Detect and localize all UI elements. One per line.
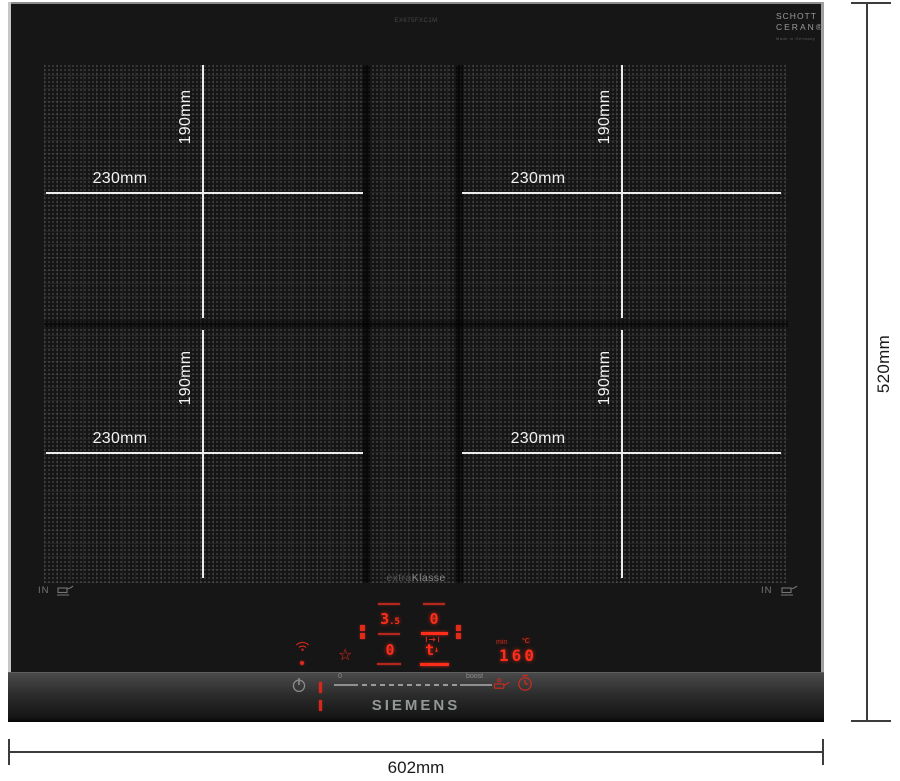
zone-width-label-top-left: 230mm [93,170,148,188]
model-number: EX675FXC1M [8,18,824,24]
wifi-icon [295,640,310,652]
dimension-tick-bottom [851,720,891,722]
series-label: extraKlasse [8,572,824,584]
spec-drawing: EX675FXC1M SCHOTT CERAN® Made in Germany… [0,0,900,781]
slider-boost-tick [460,684,492,686]
temperature-display[interactable]: 160 [492,646,544,665]
pause-indicator-right-icon [456,625,461,639]
right-display-mid-dash [421,632,448,635]
dimension-line-width [8,751,824,753]
series-label-klasse: Klasse [412,572,446,584]
dimension-tick-top [851,2,891,4]
zone-width-label-bottom-left: 230mm [93,430,148,448]
pan-mark-left-icon [56,584,74,597]
schott-line1: SCHOTT [776,11,836,22]
brand-logo: SIEMENS [8,697,824,714]
schott-line3: Made in Germany [776,36,836,41]
zone-height-label-top-left: 190mm [177,90,195,145]
zone-divider-horizontal [44,321,788,327]
right-zone-power-display[interactable]: 0 [421,610,447,628]
pause-indicator-left-icon [360,625,365,639]
frying-sensor-icon[interactable] [493,676,510,691]
zone-height-label-bottom-right: 190mm [596,351,614,406]
cooktop-body: EX675FXC1M SCHOTT CERAN® Made in Germany… [8,2,824,722]
zone-width-label-bottom-right: 230mm [511,430,566,448]
zone-line-horizontal-top-left [46,192,363,194]
left-zone-secondary-display[interactable]: 0 [374,641,406,659]
left-display-bottom-dash [377,663,401,665]
left-display-mid-dash [378,633,400,635]
slider-boost-label[interactable]: boost [466,673,483,680]
pan-mark-right-icon [780,584,798,597]
left-display-top-dash [378,603,400,605]
zone-line-horizontal-top-right [462,192,781,194]
zone-width-label-top-right: 230mm [511,170,566,188]
left-zone-power-display[interactable]: 3.5 [374,610,406,628]
schott-ceran-logo: SCHOTT CERAN® Made in Germany [776,11,836,41]
series-label-extra: extra [386,572,411,584]
zone-height-label-bottom-left: 190mm [177,351,195,406]
right-display-bottom-dash [420,663,449,666]
schott-line2: CERAN® [776,22,836,33]
zone-line-vertical-bottom-left [202,330,204,578]
front-bezel: 0 boost SIEMENS [8,672,824,722]
right-display-top-dash [423,603,445,605]
favorite-star-icon[interactable]: ☆ [338,645,352,664]
induction-mark-left: IN [38,585,50,596]
zone-line-horizontal-bottom-left [46,452,363,454]
arrow-down-icon: ↓ [434,645,439,654]
induction-mark-right: IN [761,585,773,596]
zone-line-horizontal-bottom-right [462,452,781,454]
power-icon[interactable] [291,677,307,693]
pause-button-icon[interactable] [319,680,328,691]
temp-unit-min: min [496,639,507,646]
dimension-line-height [866,2,868,722]
timer-icon[interactable] [516,674,534,692]
slider-min-tick [334,684,358,686]
zone-line-vertical-bottom-right [621,330,623,578]
status-dot-icon [300,661,304,665]
overall-width-label: 602mm [8,758,824,778]
overall-height-label: 520mm [874,335,894,393]
temp-unit-celsius: °C [522,638,530,645]
power-slider[interactable] [362,684,462,686]
right-zone-function-display[interactable]: t↓ [419,641,445,659]
zone-height-label-top-right: 190mm [596,90,614,145]
slider-min-label[interactable]: 0 [338,673,342,680]
